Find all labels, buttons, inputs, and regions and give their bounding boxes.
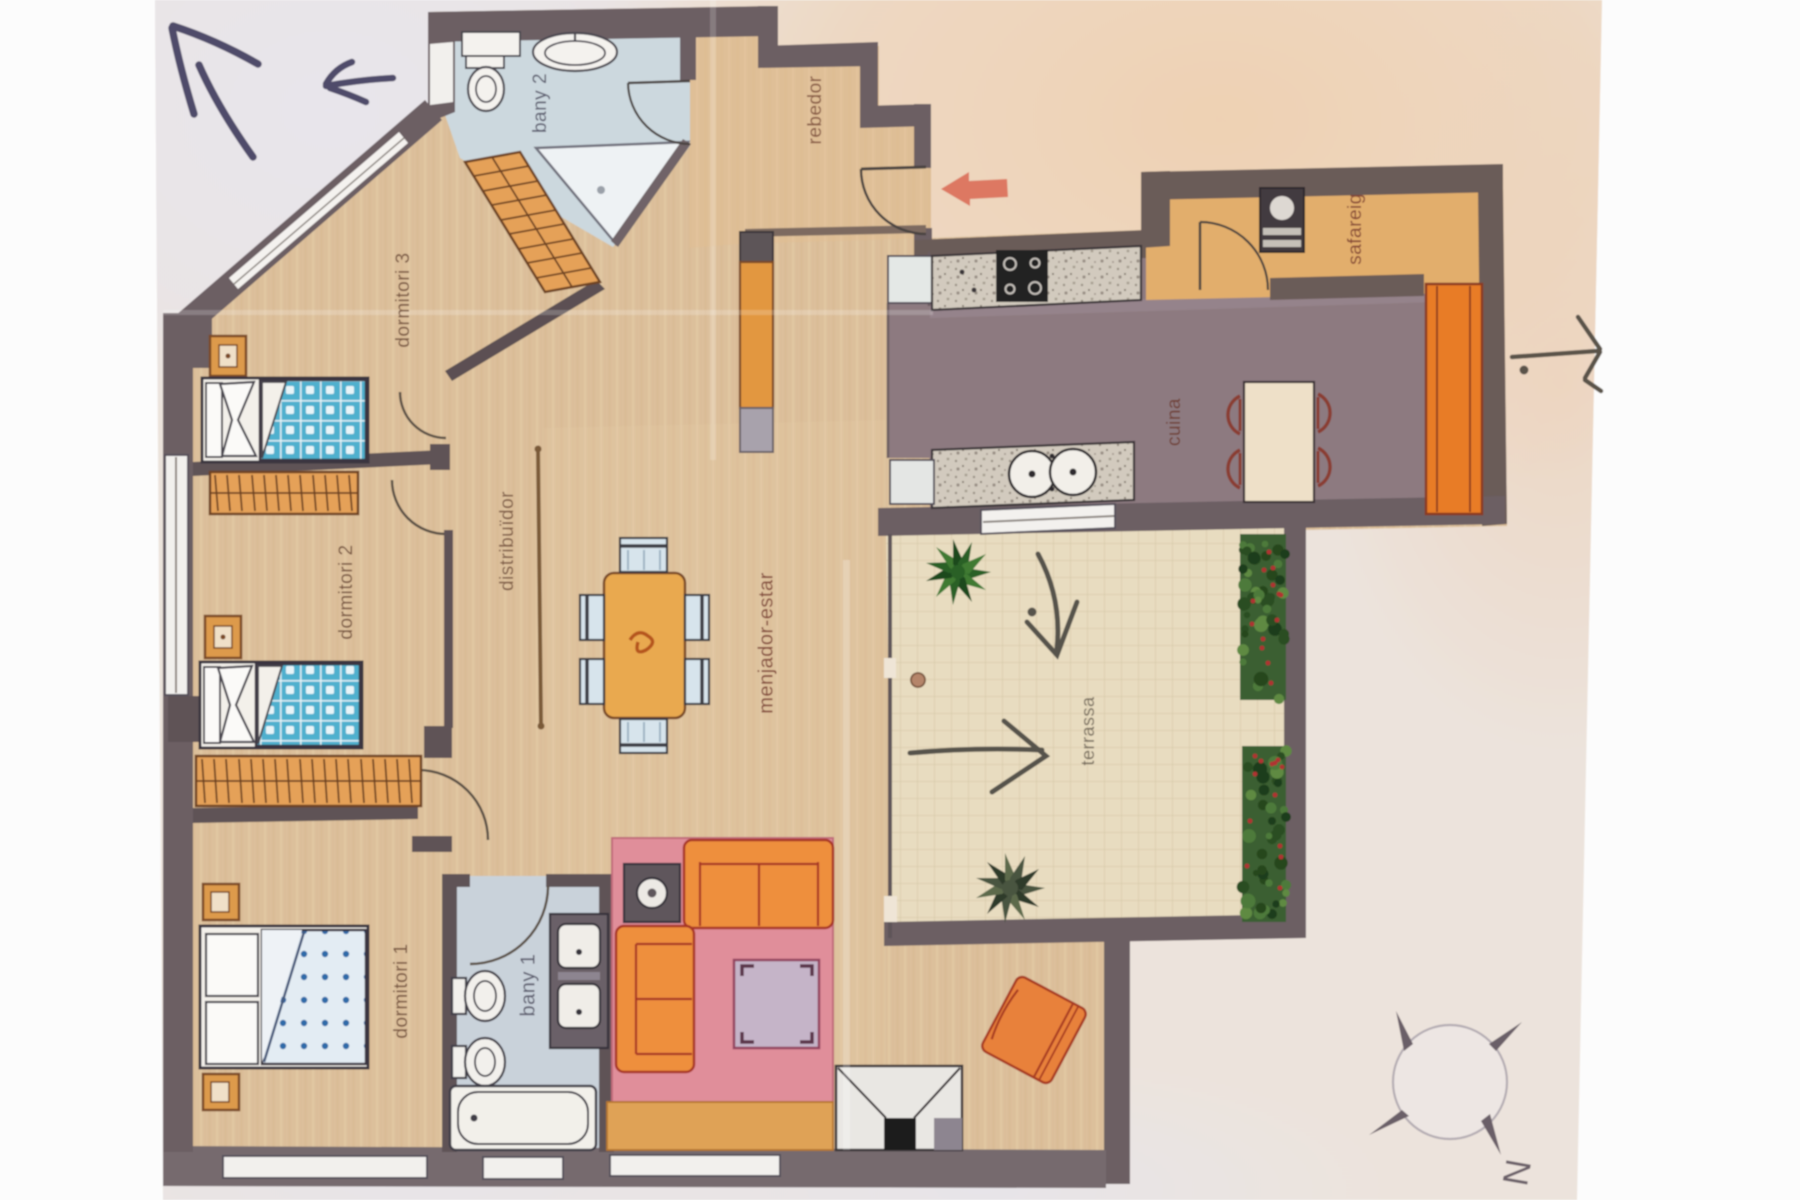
svg-text:safareig: safareig xyxy=(1345,193,1366,265)
svg-text:distribuïdor: distribuïdor xyxy=(497,491,518,591)
svg-text:menjador-estar: menjador-estar xyxy=(755,572,777,714)
svg-text:dormitori 1: dormitori 1 xyxy=(391,943,412,1038)
svg-text:dormitori 2: dormitori 2 xyxy=(336,544,357,639)
svg-text:bany 2: bany 2 xyxy=(530,73,551,133)
svg-text:cuina: cuina xyxy=(1164,398,1185,446)
svg-text:terrassa: terrassa xyxy=(1078,696,1098,766)
svg-text:rebedor: rebedor xyxy=(805,75,826,144)
svg-text:bany 1: bany 1 xyxy=(517,953,539,1016)
svg-text:dormitori 3: dormitori 3 xyxy=(393,252,414,347)
